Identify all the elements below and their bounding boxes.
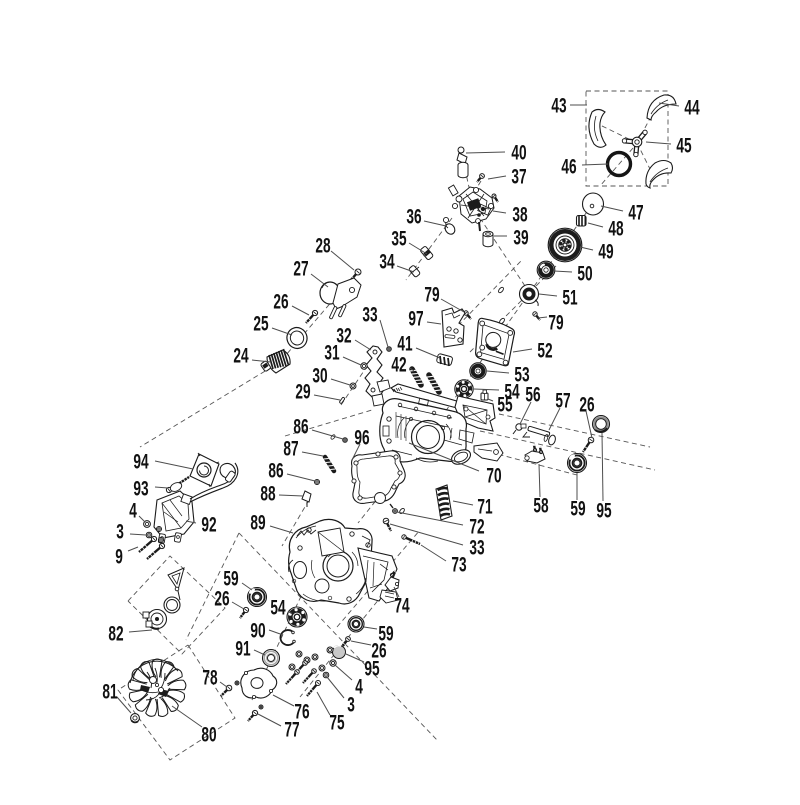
- svg-text:95: 95: [596, 499, 611, 523]
- svg-text:58: 58: [533, 494, 548, 518]
- svg-text:4: 4: [129, 499, 137, 523]
- svg-text:87: 87: [283, 437, 298, 461]
- svg-text:86: 86: [268, 459, 283, 483]
- svg-text:74: 74: [394, 594, 409, 618]
- svg-text:54: 54: [270, 596, 285, 620]
- svg-text:48: 48: [608, 217, 623, 241]
- svg-text:33: 33: [362, 303, 377, 327]
- svg-text:29: 29: [295, 380, 310, 404]
- svg-text:77: 77: [284, 718, 299, 742]
- svg-text:28: 28: [315, 234, 330, 258]
- svg-text:93: 93: [133, 477, 148, 501]
- svg-text:89: 89: [250, 511, 265, 535]
- svg-text:86: 86: [293, 415, 308, 439]
- svg-text:4: 4: [355, 675, 363, 699]
- svg-text:81: 81: [102, 680, 117, 704]
- svg-text:94: 94: [133, 450, 148, 474]
- svg-text:88: 88: [260, 482, 275, 506]
- svg-text:30: 30: [312, 364, 327, 388]
- svg-text:9: 9: [115, 545, 123, 569]
- svg-text:39: 39: [513, 226, 528, 250]
- svg-text:56: 56: [525, 383, 540, 407]
- svg-text:42: 42: [391, 353, 406, 377]
- svg-text:47: 47: [628, 201, 643, 225]
- svg-text:34: 34: [379, 250, 394, 274]
- svg-text:79: 79: [424, 283, 439, 307]
- svg-text:31: 31: [324, 341, 339, 365]
- svg-text:59: 59: [378, 622, 393, 646]
- svg-text:35: 35: [391, 227, 406, 251]
- svg-text:40: 40: [511, 141, 526, 165]
- svg-text:91: 91: [235, 637, 250, 661]
- svg-text:25: 25: [253, 312, 268, 336]
- svg-text:79: 79: [548, 311, 563, 335]
- svg-text:3: 3: [347, 693, 355, 717]
- svg-text:80: 80: [201, 723, 216, 747]
- svg-text:26: 26: [579, 393, 594, 417]
- svg-text:90: 90: [250, 619, 265, 643]
- svg-text:73: 73: [451, 553, 466, 577]
- svg-text:96: 96: [354, 426, 369, 450]
- svg-text:43: 43: [551, 94, 566, 118]
- svg-text:26: 26: [273, 290, 288, 314]
- svg-text:38: 38: [512, 203, 527, 227]
- svg-text:75: 75: [329, 711, 344, 735]
- svg-text:44: 44: [684, 96, 699, 120]
- svg-text:49: 49: [598, 240, 613, 264]
- svg-text:26: 26: [214, 587, 229, 611]
- svg-text:82: 82: [108, 622, 123, 646]
- svg-text:46: 46: [561, 155, 576, 179]
- svg-text:97: 97: [408, 307, 423, 331]
- svg-text:37: 37: [511, 165, 526, 189]
- svg-text:36: 36: [406, 205, 421, 229]
- svg-text:59: 59: [570, 497, 585, 521]
- svg-text:3: 3: [116, 520, 124, 544]
- svg-text:50: 50: [577, 262, 592, 286]
- svg-text:92: 92: [201, 513, 216, 537]
- svg-text:27: 27: [293, 257, 308, 281]
- svg-text:57: 57: [555, 389, 570, 413]
- svg-text:24: 24: [233, 344, 248, 368]
- svg-text:45: 45: [676, 134, 691, 158]
- svg-text:55: 55: [497, 393, 512, 417]
- svg-text:51: 51: [562, 286, 577, 310]
- svg-text:52: 52: [537, 339, 552, 363]
- svg-text:33: 33: [469, 536, 484, 560]
- svg-text:70: 70: [486, 464, 501, 488]
- svg-text:78: 78: [202, 666, 217, 690]
